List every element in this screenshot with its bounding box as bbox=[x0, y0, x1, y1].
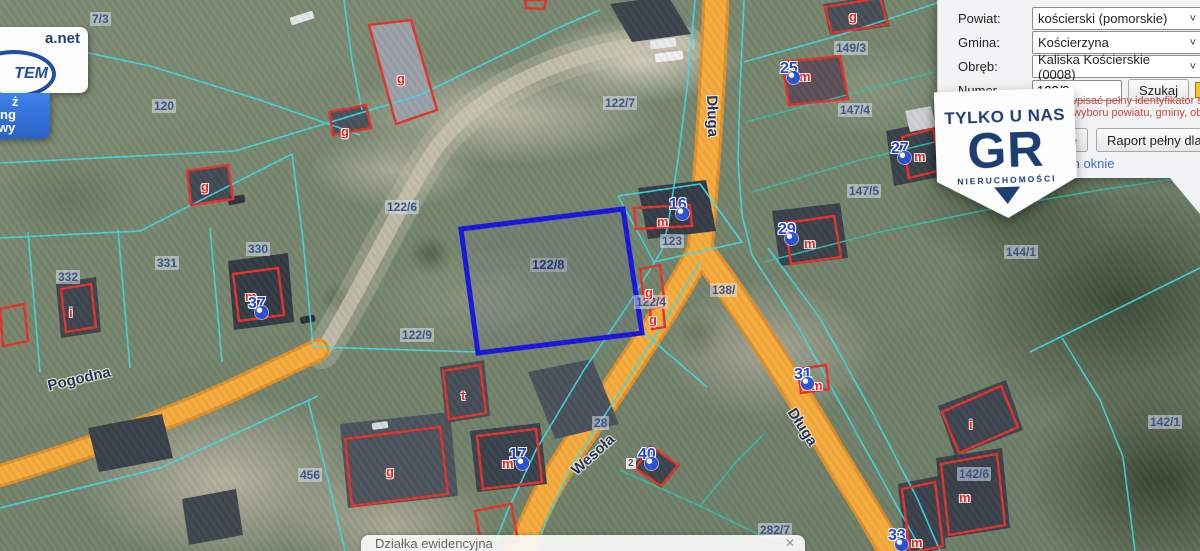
parcel-label-138-: 138/ bbox=[710, 283, 737, 297]
street-label-wesoła: Wesoła bbox=[568, 431, 618, 479]
hint-line-2: wyboru powiatu, gminy, obrębu. bbox=[1073, 107, 1200, 119]
marker-icon[interactable] bbox=[255, 306, 268, 319]
watermark-blue-box: ż ng wy bbox=[0, 93, 50, 139]
marker-27[interactable]: 27 bbox=[891, 140, 909, 158]
street-label-pogodna: Pogodna bbox=[46, 364, 112, 395]
parcel-label-28: 28 bbox=[592, 416, 609, 430]
parcel-label-147-4: 147/4 bbox=[838, 103, 872, 117]
marker-40[interactable]: 402 bbox=[638, 446, 656, 464]
marker-icon[interactable] bbox=[516, 457, 529, 470]
parcel-label-147-5: 147/5 bbox=[847, 184, 881, 198]
powiat-label: Powiat: bbox=[958, 11, 1032, 26]
building-letter-t: t bbox=[461, 389, 465, 402]
chevron-down-icon: ˅ bbox=[1190, 13, 1196, 25]
building-letter-m: m bbox=[914, 150, 926, 163]
parcel-label-149-3: 149/3 bbox=[834, 41, 868, 55]
parcel-label-142-6: 142/6 bbox=[957, 467, 991, 481]
obreb-value: Kaliska Kościerskie (0008) bbox=[1038, 52, 1186, 82]
watermark-oval-text: TEM bbox=[14, 65, 52, 83]
parcel-label-142-1: 142/1 bbox=[1148, 415, 1182, 429]
building-letter-m: m bbox=[799, 70, 811, 83]
badge-line2: GR bbox=[935, 119, 1077, 182]
parcel-label-144-1: 144/1 bbox=[1004, 245, 1038, 259]
chevron-down-icon: ˅ bbox=[1190, 61, 1196, 73]
marker-icon[interactable] bbox=[645, 457, 658, 470]
marker-icon[interactable] bbox=[785, 232, 798, 245]
parcel-label-456: 456 bbox=[298, 468, 322, 482]
watermark-oval-logo: TEM bbox=[0, 50, 56, 98]
building-letter-g: g bbox=[397, 72, 405, 85]
gmina-label: Gmina: bbox=[958, 35, 1032, 50]
parcel-label-122-9: 122/9 bbox=[400, 328, 434, 342]
marker-16[interactable]: 16 bbox=[669, 196, 687, 214]
gr-watermark-badge: TYLKO U NAS GR NIERUCHOMOŚCI bbox=[934, 88, 1078, 221]
building-letter-g: g bbox=[201, 180, 209, 193]
marker-icon[interactable] bbox=[898, 151, 911, 164]
powiat-select[interactable]: kościerski (pomorskie) ˅ bbox=[1032, 7, 1200, 30]
parcel-label-331: 331 bbox=[155, 256, 179, 270]
parcel-label-122-8: 122/8 bbox=[530, 258, 567, 272]
obreb-label: Obręb: bbox=[958, 59, 1032, 74]
building-letter-g: g bbox=[649, 313, 657, 326]
street-label-długa: Długa bbox=[703, 95, 721, 137]
close-icon[interactable]: ✕ bbox=[785, 536, 805, 550]
building-letter-m: m bbox=[804, 237, 816, 250]
building-letter-g: g bbox=[645, 286, 653, 299]
marker-33[interactable]: 33 bbox=[888, 527, 906, 545]
powiat-value: kościerski (pomorskie) bbox=[1038, 11, 1167, 26]
marker-icon[interactable] bbox=[787, 71, 800, 84]
tooltip-title: Działka ewidencyjna bbox=[361, 536, 785, 551]
building-letter-m: m bbox=[657, 215, 669, 228]
marker-icon[interactable] bbox=[676, 207, 689, 220]
parcel-label-123: 123 bbox=[660, 234, 684, 248]
building-letter-g: g bbox=[849, 10, 857, 23]
marker-29[interactable]: 29 bbox=[778, 221, 796, 239]
parcel-label-330: 330 bbox=[246, 242, 270, 256]
chevron-down-icon: ˅ bbox=[1190, 37, 1196, 49]
map-viewport[interactable]: 7/3120122/7122/6122/9122/8123122/4138/14… bbox=[0, 0, 1200, 551]
parcel-tooltip-bar: Działka ewidencyjna ✕ bbox=[361, 535, 805, 551]
watermark-blue-line3: wy bbox=[0, 120, 15, 135]
marker-37[interactable]: 37 bbox=[248, 295, 266, 313]
building-letter-i: i bbox=[69, 306, 73, 319]
gmina-value: Kościerzyna bbox=[1038, 35, 1109, 50]
parcel-label-122-6: 122/6 bbox=[385, 200, 419, 214]
obreb-select[interactable]: Kaliska Kościerskie (0008) ˅ bbox=[1032, 55, 1200, 78]
marker-icon[interactable] bbox=[801, 377, 814, 390]
watermark-logo-card: a.net TEM bbox=[0, 27, 88, 93]
badge-triangle bbox=[994, 187, 1021, 205]
hint-line-1: wpisać pełny identyfikator szukanej d bbox=[1069, 95, 1200, 107]
marker-tag: 2 bbox=[626, 458, 636, 469]
marker-25[interactable]: 25 bbox=[780, 60, 798, 78]
building-letter-m: m bbox=[911, 536, 923, 549]
building-letter-g: g bbox=[386, 465, 394, 478]
marker-icon[interactable] bbox=[895, 538, 908, 551]
parcel-label-122-7: 122/7 bbox=[603, 96, 637, 110]
watermark-domain-text: a.net bbox=[45, 30, 80, 47]
parcel-label-120: 120 bbox=[152, 99, 176, 113]
building-letter-i: i bbox=[969, 418, 973, 431]
parcel-label-332: 332 bbox=[56, 270, 80, 284]
marker-31[interactable]: 31 bbox=[794, 366, 812, 384]
street-label-długa: Długa bbox=[784, 405, 821, 449]
parcel-label-7-3: 7/3 bbox=[90, 12, 111, 26]
raport-pelny-button[interactable]: Raport pełny dla dzia bbox=[1096, 128, 1200, 152]
building-letter-m: m bbox=[959, 491, 971, 504]
marker-17[interactable]: 17 bbox=[509, 446, 527, 464]
building-letter-g: g bbox=[341, 125, 349, 138]
